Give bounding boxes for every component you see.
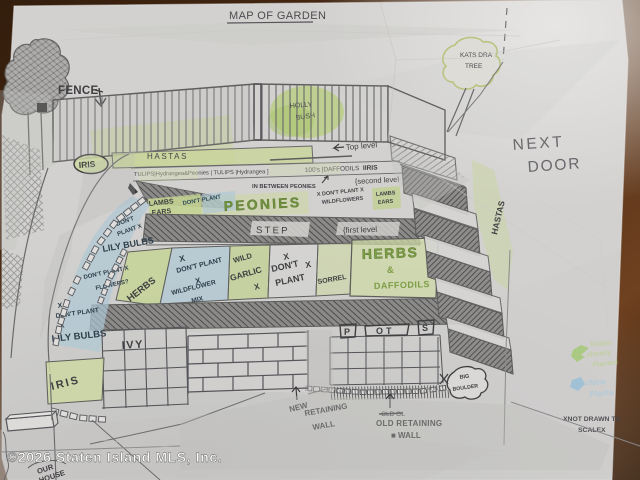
svg-text:S: S (422, 323, 428, 333)
svg-text:MAP OF GARDEN: MAP OF GARDEN (229, 10, 326, 22)
svg-text:TREE: TREE (465, 63, 483, 70)
svg-text:P: P (344, 327, 350, 337)
svg-text:XNOT DRAWN TO: XNOT DRAWN TO (563, 416, 621, 423)
svg-text:HERBS: HERBS (362, 244, 419, 262)
svg-text:HASTAS: HASTAS (147, 152, 188, 161)
svg-text:OT: OT (376, 326, 395, 336)
svg-text:©2026 Staten Island MLS, Inc.: ©2026 Staten Island MLS, Inc. (7, 449, 222, 465)
svg-text:NEXT: NEXT (512, 133, 565, 154)
svg-text:IVY: IVY (121, 338, 144, 352)
svg-text:IIRIS: IIRIS (363, 164, 378, 172)
svg-text:&: & (387, 265, 394, 276)
svg-text:IN BETWEEN PEONIES: IN BETWEEN PEONIES (252, 184, 316, 190)
svg-text:STEP: STEP (256, 225, 290, 237)
svg-text:{first level: {first level (343, 225, 378, 235)
svg-text:DAFFODILS: DAFFODILS (374, 279, 430, 291)
svg-text:FENCE: FENCE (58, 85, 99, 97)
